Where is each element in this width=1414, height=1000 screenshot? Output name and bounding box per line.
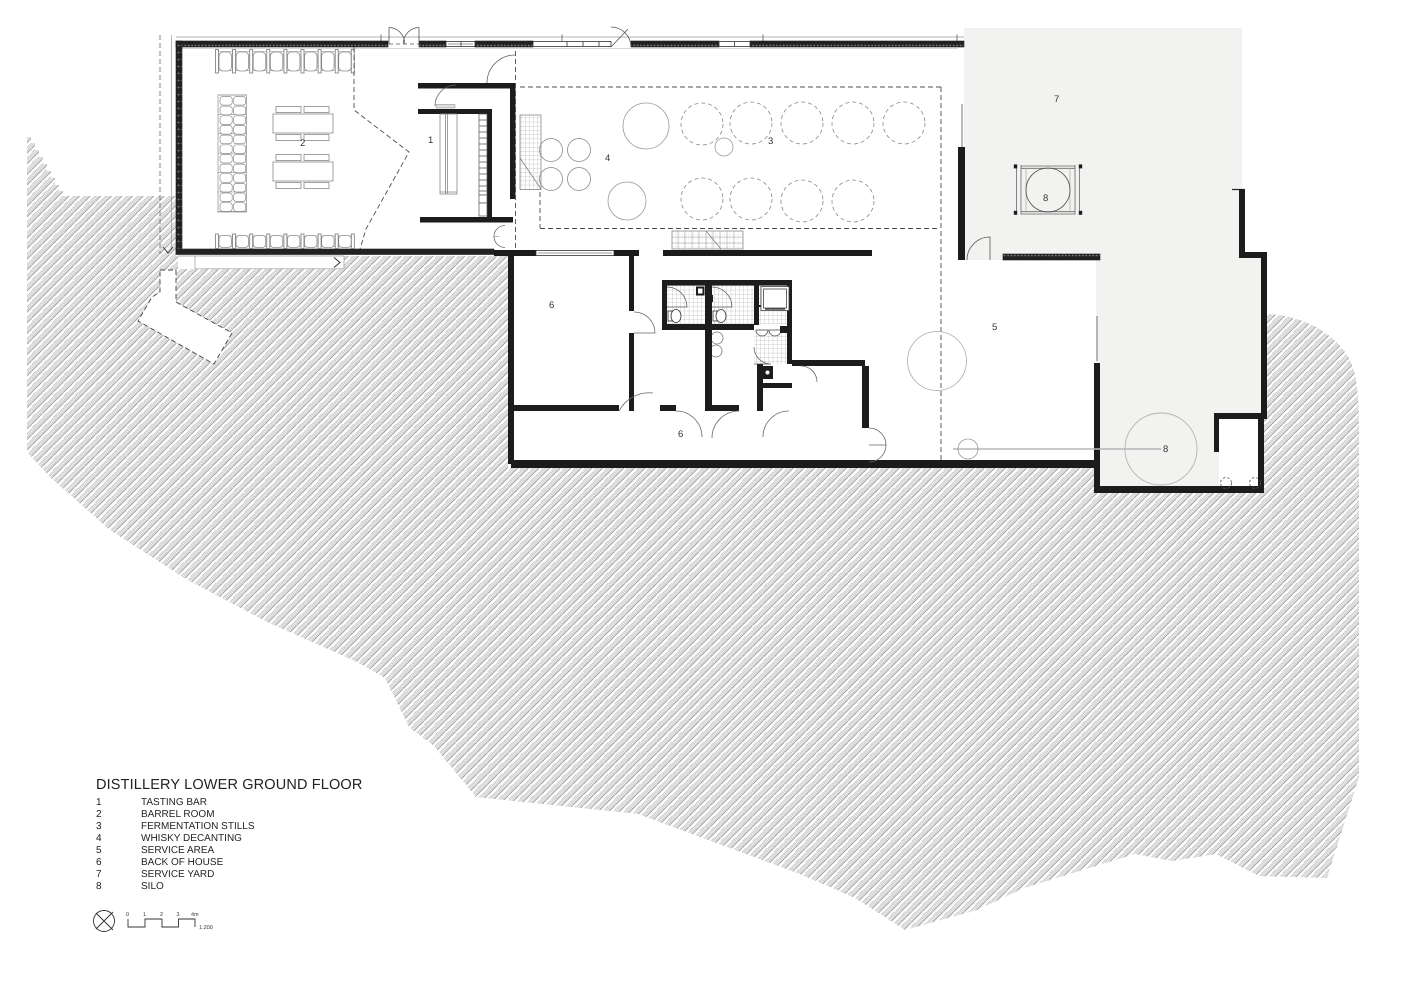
svg-text:TASTING BAR: TASTING BAR (141, 797, 207, 808)
svg-text:3: 3 (177, 912, 180, 918)
svg-text:5: 5 (992, 322, 997, 333)
svg-text:4: 4 (605, 153, 610, 164)
svg-text:2: 2 (160, 912, 163, 918)
svg-text:SILO: SILO (141, 881, 164, 892)
svg-text:6: 6 (549, 300, 554, 311)
svg-text:SERVICE YARD: SERVICE YARD (141, 869, 214, 880)
svg-text:4: 4 (96, 833, 102, 844)
svg-text:SERVICE AREA: SERVICE AREA (141, 845, 215, 856)
svg-text:3: 3 (96, 821, 102, 832)
svg-text:6: 6 (678, 429, 683, 440)
svg-text:4m: 4m (191, 912, 199, 918)
svg-text:BACK OF HOUSE: BACK OF HOUSE (141, 857, 224, 868)
svg-text:FERMENTATION STILLS: FERMENTATION STILLS (141, 821, 255, 832)
svg-text:8: 8 (1043, 193, 1048, 204)
svg-text:WHISKY DECANTING: WHISKY DECANTING (141, 833, 242, 844)
svg-text:2: 2 (96, 809, 102, 820)
svg-text:2: 2 (300, 138, 305, 149)
svg-text:7: 7 (96, 869, 102, 880)
svg-text:6: 6 (96, 857, 102, 868)
svg-text:5: 5 (96, 845, 102, 856)
svg-text:7: 7 (1054, 94, 1059, 105)
svg-text:1:200: 1:200 (199, 925, 213, 931)
svg-text:BARREL ROOM: BARREL ROOM (141, 809, 215, 820)
svg-text:DISTILLERY LOWER GROUND FLOOR: DISTILLERY LOWER GROUND FLOOR (96, 777, 362, 793)
svg-text:8: 8 (96, 881, 102, 892)
svg-text:1: 1 (428, 135, 433, 146)
svg-text:8: 8 (1163, 444, 1168, 455)
svg-text:0: 0 (126, 912, 129, 918)
svg-text:1: 1 (96, 797, 102, 808)
svg-text:3: 3 (768, 136, 773, 147)
svg-text:1: 1 (143, 912, 146, 918)
